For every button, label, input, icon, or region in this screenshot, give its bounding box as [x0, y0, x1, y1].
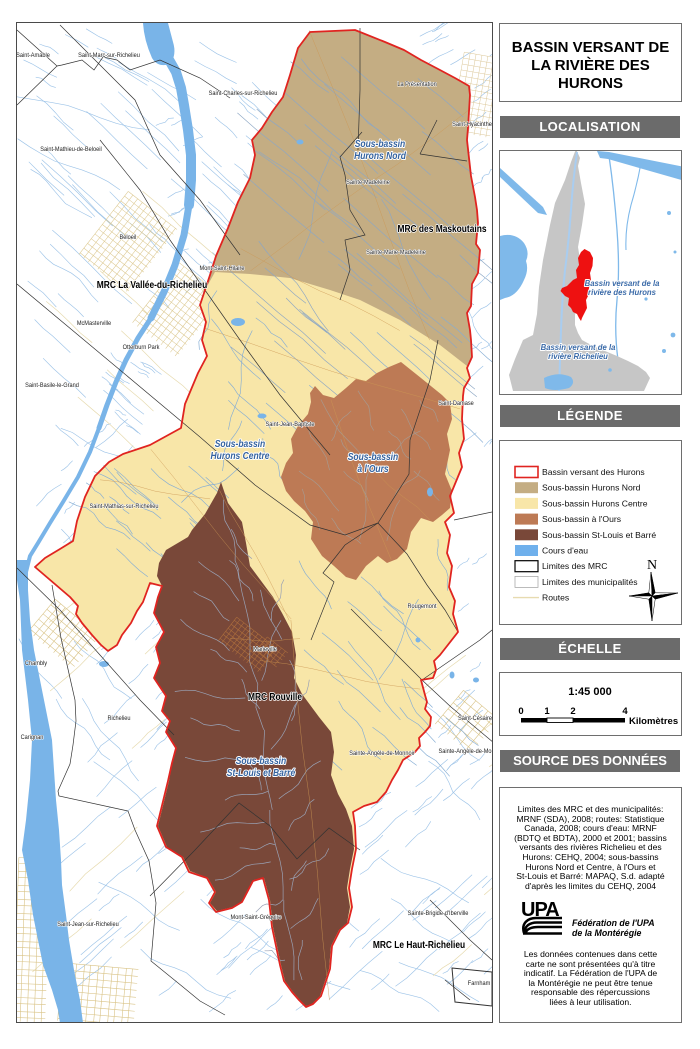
svg-text:Saint-Basile-le-Grand: Saint-Basile-le-Grand: [25, 383, 79, 389]
svg-text:1:45 000: 1:45 000: [568, 686, 611, 698]
svg-text:0: 0: [518, 706, 523, 717]
svg-text:Mont-Saint-Grégoire: Mont-Saint-Grégoire: [231, 915, 283, 921]
svg-text:Sous-bassin Hurons Centre: Sous-bassin Hurons Centre: [542, 498, 648, 508]
svg-text:Hurons Nord: Hurons Nord: [354, 150, 406, 161]
svg-text:Sous-bassin: Sous-bassin: [348, 451, 399, 462]
svg-text:Otterburn Park: Otterburn Park: [123, 345, 161, 351]
svg-text:Sainte-Angèle-de-Monnoir: Sainte-Angèle-de-Monnoir: [349, 751, 415, 757]
svg-text:Saint-Marc-sur-Richelieu: Saint-Marc-sur-Richelieu: [78, 53, 140, 59]
svg-text:Sainte-Marie-Madeleine: Sainte-Marie-Madeleine: [366, 250, 426, 256]
svg-text:Saint-Damase: Saint-Damase: [438, 401, 474, 407]
svg-text:Limites des MRC: Limites des MRC: [542, 561, 607, 571]
svg-text:Saint-Charles-sur-Richelieu: Saint-Charles-sur-Richelieu: [209, 91, 278, 97]
svg-text:Saint-Amable: Saint-Amable: [16, 53, 50, 59]
svg-text:Cours d'eau: Cours d'eau: [542, 546, 588, 556]
svg-text:Marieville: Marieville: [253, 647, 277, 653]
svg-text:Sous-bassin: Sous-bassin: [215, 438, 266, 449]
svg-text:MRC Le Haut-Richelieu: MRC Le Haut-Richelieu: [373, 939, 466, 950]
svg-text:St-Louis et Barré: St-Louis et Barré: [227, 767, 295, 778]
svg-text:Saint-Jean-sur-Richelieu: Saint-Jean-sur-Richelieu: [57, 922, 119, 928]
svg-text:rivière Richelieu: rivière Richelieu: [548, 352, 608, 361]
svg-text:Saint-Césaire: Saint-Césaire: [458, 716, 493, 722]
svg-text:4: 4: [622, 706, 628, 717]
svg-text:Sous-bassin St-Louis et Barré: Sous-bassin St-Louis et Barré: [542, 530, 656, 540]
svg-text:Sous-bassin: Sous-bassin: [236, 755, 287, 766]
svg-text:Sous-bassin: Sous-bassin: [355, 138, 406, 149]
svg-text:rivière des Hurons: rivière des Hurons: [588, 288, 656, 297]
svg-text:N: N: [647, 558, 657, 573]
svg-text:Fédération de l'UPA: Fédération de l'UPA: [572, 918, 655, 928]
svg-text:Sainte-Brigide-d'Iberville: Sainte-Brigide-d'Iberville: [408, 911, 469, 917]
svg-text:Sous-bassin à l'Ours: Sous-bassin à l'Ours: [542, 514, 621, 524]
svg-text:Routes: Routes: [542, 593, 569, 603]
svg-text:Sainte-Madeleine: Sainte-Madeleine: [346, 180, 390, 186]
svg-text:2: 2: [570, 706, 575, 717]
svg-text:MRC des Maskoutains: MRC des Maskoutains: [398, 223, 487, 234]
svg-text:Bassin versant des Hurons: Bassin versant des Hurons: [542, 467, 645, 477]
svg-text:Hurons Centre: Hurons Centre: [211, 450, 270, 461]
svg-text:Saint-Mathieu-de-Beloeil: Saint-Mathieu-de-Beloeil: [40, 147, 102, 153]
svg-text:1: 1: [544, 706, 550, 717]
svg-text:Sous-bassin Hurons Nord: Sous-bassin Hurons Nord: [542, 483, 641, 493]
svg-text:Sainte-Angèle-de-Mo: Sainte-Angèle-de-Mo: [438, 749, 492, 755]
svg-text:Mont-Saint-Hilaire: Mont-Saint-Hilaire: [200, 266, 246, 272]
svg-text:Saint-Mathias-sur-Richelieu: Saint-Mathias-sur-Richelieu: [89, 504, 158, 510]
svg-text:La Présentation: La Présentation: [397, 82, 436, 88]
svg-text:Saint-Hyacinthe: Saint-Hyacinthe: [452, 122, 492, 128]
svg-text:Limites des municipalités: Limites des municipalités: [542, 577, 638, 587]
svg-text:Farnham: Farnham: [468, 981, 490, 987]
svg-text:Chambly: Chambly: [25, 661, 47, 667]
svg-text:Carignan: Carignan: [21, 735, 44, 741]
svg-text:McMasterville: McMasterville: [77, 321, 112, 327]
svg-text:Richelieu: Richelieu: [107, 716, 130, 722]
svg-text:MRC Rouville: MRC Rouville: [248, 691, 302, 702]
svg-text:Beloeil: Beloeil: [120, 235, 137, 241]
svg-text:MRC La Vallée-du-Richelieu: MRC La Vallée-du-Richelieu: [97, 279, 208, 290]
svg-text:de la Montérégie: de la Montérégie: [572, 928, 642, 938]
svg-text:Kilomètres: Kilomètres: [629, 716, 678, 727]
svg-text:Rougemont: Rougemont: [407, 604, 436, 610]
svg-text:Saint-Jean-Baptiste: Saint-Jean-Baptiste: [265, 422, 315, 428]
svg-text:à l'Ours: à l'Ours: [357, 463, 388, 474]
